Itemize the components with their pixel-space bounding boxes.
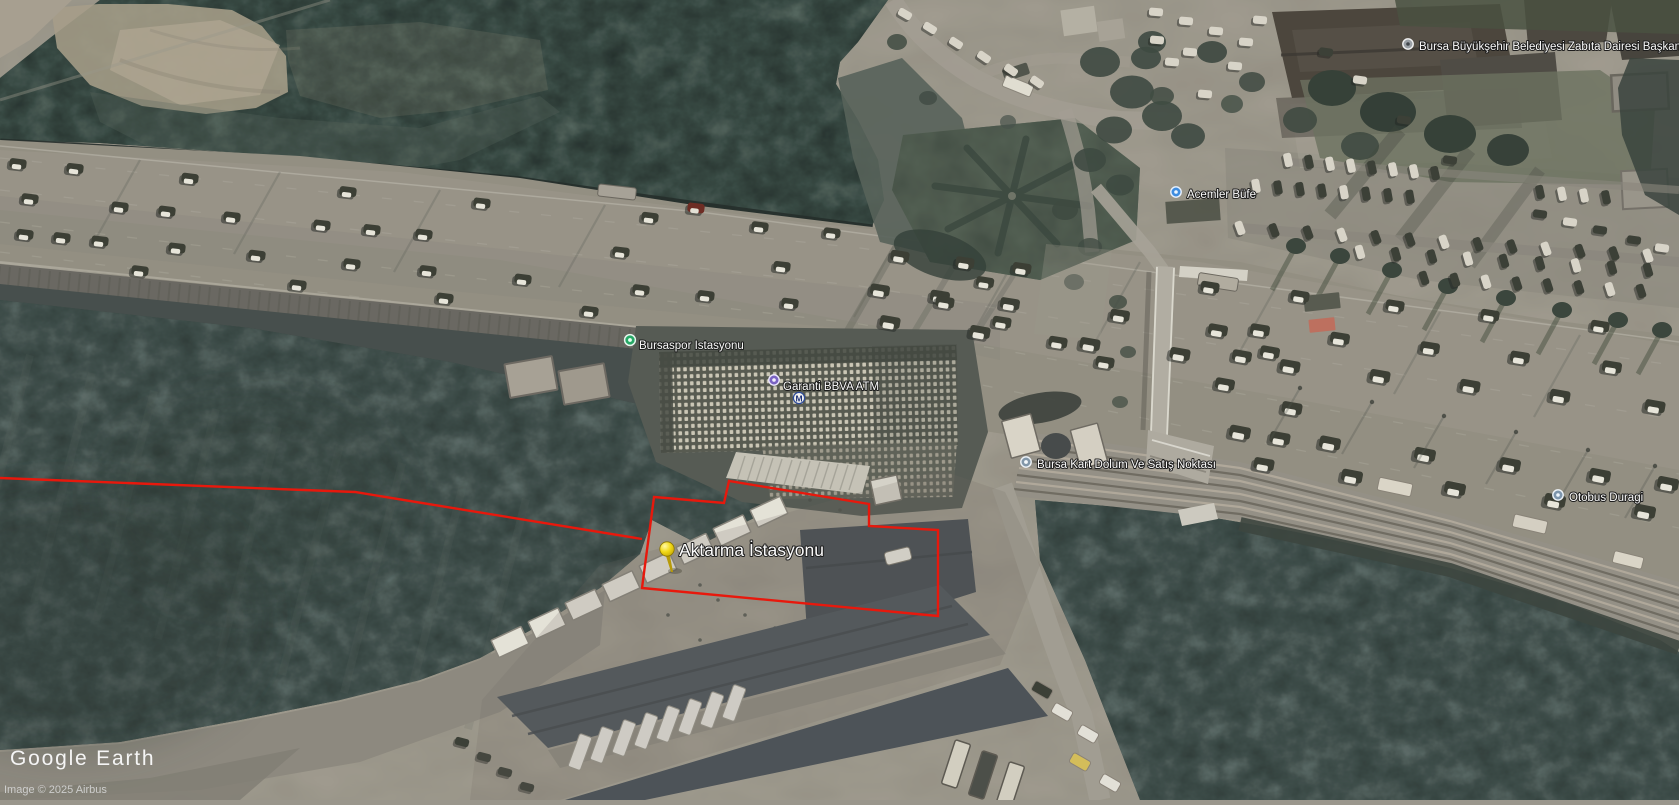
svg-text:Aktarma İstasyonu: Aktarma İstasyonu	[679, 540, 824, 560]
svg-text:Google Earth: Google Earth	[10, 747, 155, 770]
svg-text:Bursaspor Istasyonu: Bursaspor Istasyonu	[639, 340, 744, 352]
svg-text:Bursa Büyükşehir Belediyesi Za: Bursa Büyükşehir Belediyesi Zabıta Daire…	[1419, 41, 1679, 53]
svg-text:Garanti BBVA ATM: Garanti BBVA ATM	[783, 381, 879, 393]
svg-text:M: M	[795, 394, 802, 404]
svg-text:Image © 2025 Airbus: Image © 2025 Airbus	[4, 784, 107, 796]
svg-text:Bursa Kart Dolum Ve Satış Nokt: Bursa Kart Dolum Ve Satış Noktası	[1037, 459, 1216, 471]
svg-text:Acemler Büfe: Acemler Büfe	[1187, 189, 1256, 201]
svg-text:Otobus Duragi: Otobus Duragi	[1569, 492, 1643, 504]
